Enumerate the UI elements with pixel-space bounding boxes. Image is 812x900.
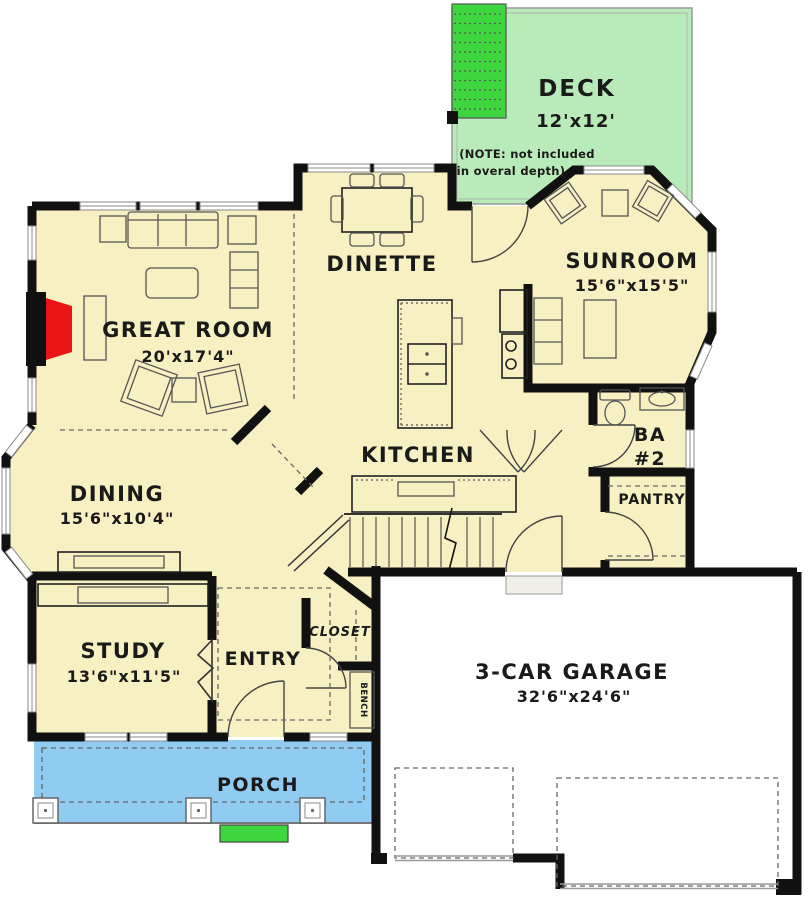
deck-stair-newel (447, 111, 458, 124)
garage-floor (376, 572, 797, 890)
dinette-label: DINETTE (326, 252, 437, 276)
deck-note-line2: in overal depth) (457, 164, 566, 178)
front-step (220, 825, 288, 842)
porch-label: PORCH (217, 774, 299, 796)
pantry-label: PANTRY (618, 492, 685, 508)
fireplace-box (46, 298, 72, 360)
bath2-label-line2: #2 (634, 448, 666, 470)
dining-label: DINING (70, 482, 164, 506)
bath2-label-line1: BA (634, 424, 666, 446)
bench-label: BENCH (358, 682, 368, 717)
floor-plan-drawing: DECK 12'x12' (NOTE: not included in over… (0, 0, 812, 900)
great-room-dims: 20'x17'4" (141, 347, 234, 366)
deck-note-line1: (NOTE: not included (459, 147, 595, 161)
floor-plan-page: DECK 12'x12' (NOTE: not included in over… (0, 0, 812, 900)
closet-label: CLOSET (309, 625, 371, 640)
garage-step (506, 576, 562, 594)
deck-dims: 12'x12' (536, 111, 616, 132)
study-dims: 13'6"x11'5" (67, 667, 182, 686)
fireplace-surround (26, 292, 46, 366)
entry-label: ENTRY (225, 648, 302, 670)
garage-label: 3-CAR GARAGE (475, 660, 669, 684)
sunroom-dims: 15'6"x15'5" (575, 276, 690, 295)
study-label: STUDY (80, 639, 165, 663)
great-room-label: GREAT ROOM (102, 318, 274, 342)
kitchen-label: KITCHEN (361, 443, 475, 467)
dining-dims: 15'6"x10'4" (60, 509, 175, 528)
garage-wall-stub-right (776, 879, 801, 895)
garage-wall-stub-left (371, 853, 387, 864)
sunroom-label: SUNROOM (565, 249, 698, 273)
deck-label: DECK (538, 76, 616, 102)
garage-dims: 32'6"x24'6" (517, 687, 632, 706)
